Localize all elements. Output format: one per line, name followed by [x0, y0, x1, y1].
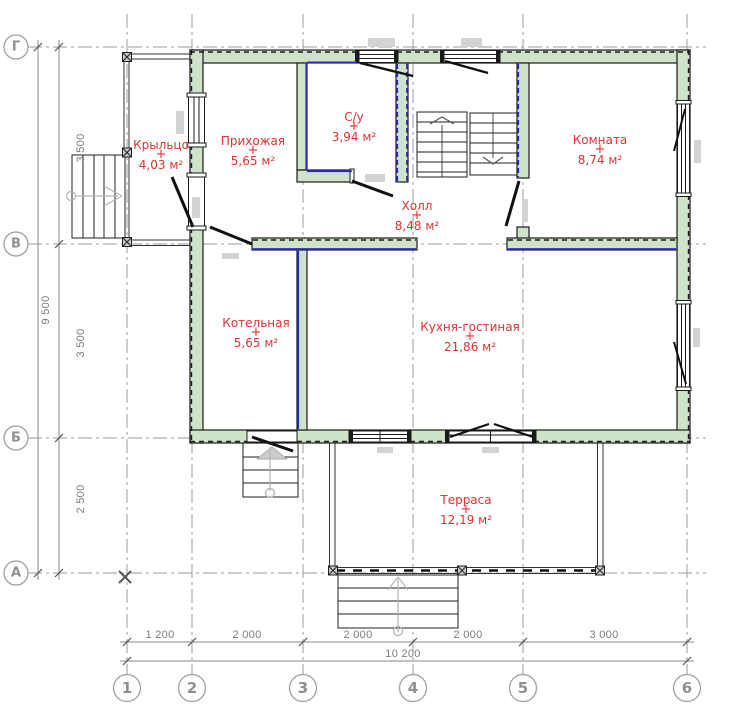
internal-staircase [417, 112, 517, 177]
dim-bottom-segment-1: 1 200 [145, 629, 174, 641]
window-top-su [356, 50, 399, 63]
axis-row-v: В [11, 237, 21, 252]
axis-row-g: Г [12, 40, 20, 55]
axis-row-a: А [11, 566, 21, 581]
room-area: 21,86 м² [420, 341, 520, 353]
room-label-porch: Крыльцо + 4,03 м² [133, 139, 189, 171]
axis-col-4: 4 [408, 679, 418, 697]
axis-col-3: 3 [298, 679, 308, 697]
room-label-terrace: Терраса + 12,19 м² [440, 494, 492, 526]
room-label-kitchen-living: Кухня-гостиная + 21,86 м² [420, 321, 520, 353]
axis-col-1: 1 [122, 679, 132, 697]
dim-left-segment-2: 3 500 [75, 328, 87, 357]
dim-bottom-segment-5: 3 000 [589, 629, 618, 641]
dim-bottom-overall: 10 200 [385, 648, 420, 660]
axis-intersection-x-marker [119, 571, 131, 583]
room-area: 3,94 м² [332, 131, 376, 143]
room-label-boiler: Котельная + 5,65 м² [222, 317, 289, 349]
axis-col-2: 2 [187, 679, 197, 697]
dim-bottom-segment-2: 2 000 [232, 629, 261, 641]
floor-plan-canvas: Крыльцо + 4,03 м² Прихожая + 5,65 м² С/у… [0, 0, 731, 706]
room-label-hallway: Прихожая + 5,65 м² [221, 135, 285, 167]
room-area: 12,19 м² [440, 514, 492, 526]
window-bottom-kitchen [349, 430, 411, 443]
floor-plan-drawing [0, 0, 731, 706]
dim-left-overall: 9 500 [40, 295, 52, 324]
dim-bottom-segment-3: 2 000 [343, 629, 372, 641]
room-label-bathroom: С/у + 3,94 м² [332, 111, 376, 143]
room-label-room: Комната + 8,74 м² [573, 134, 627, 166]
axis-row-b: Б [11, 431, 21, 446]
room-label-hall: Холл + 8,48 м² [395, 200, 439, 232]
axis-col-5: 5 [518, 679, 528, 697]
room-area: 5,65 м² [222, 337, 289, 349]
walls [190, 50, 690, 443]
french-door-terrace [446, 430, 537, 443]
axis-col-6: 6 [682, 679, 692, 697]
window-left-hallway [187, 93, 206, 147]
room-area: 5,65 м² [221, 155, 285, 167]
dim-left-segment-3: 2 500 [75, 484, 87, 513]
dim-bottom-segment-4: 2 000 [453, 629, 482, 641]
room-area: 8,48 м² [395, 220, 439, 232]
dim-left-segment-1: 3 500 [75, 133, 87, 162]
room-area: 8,74 м² [573, 154, 627, 166]
room-area: 4,03 м² [133, 159, 189, 171]
